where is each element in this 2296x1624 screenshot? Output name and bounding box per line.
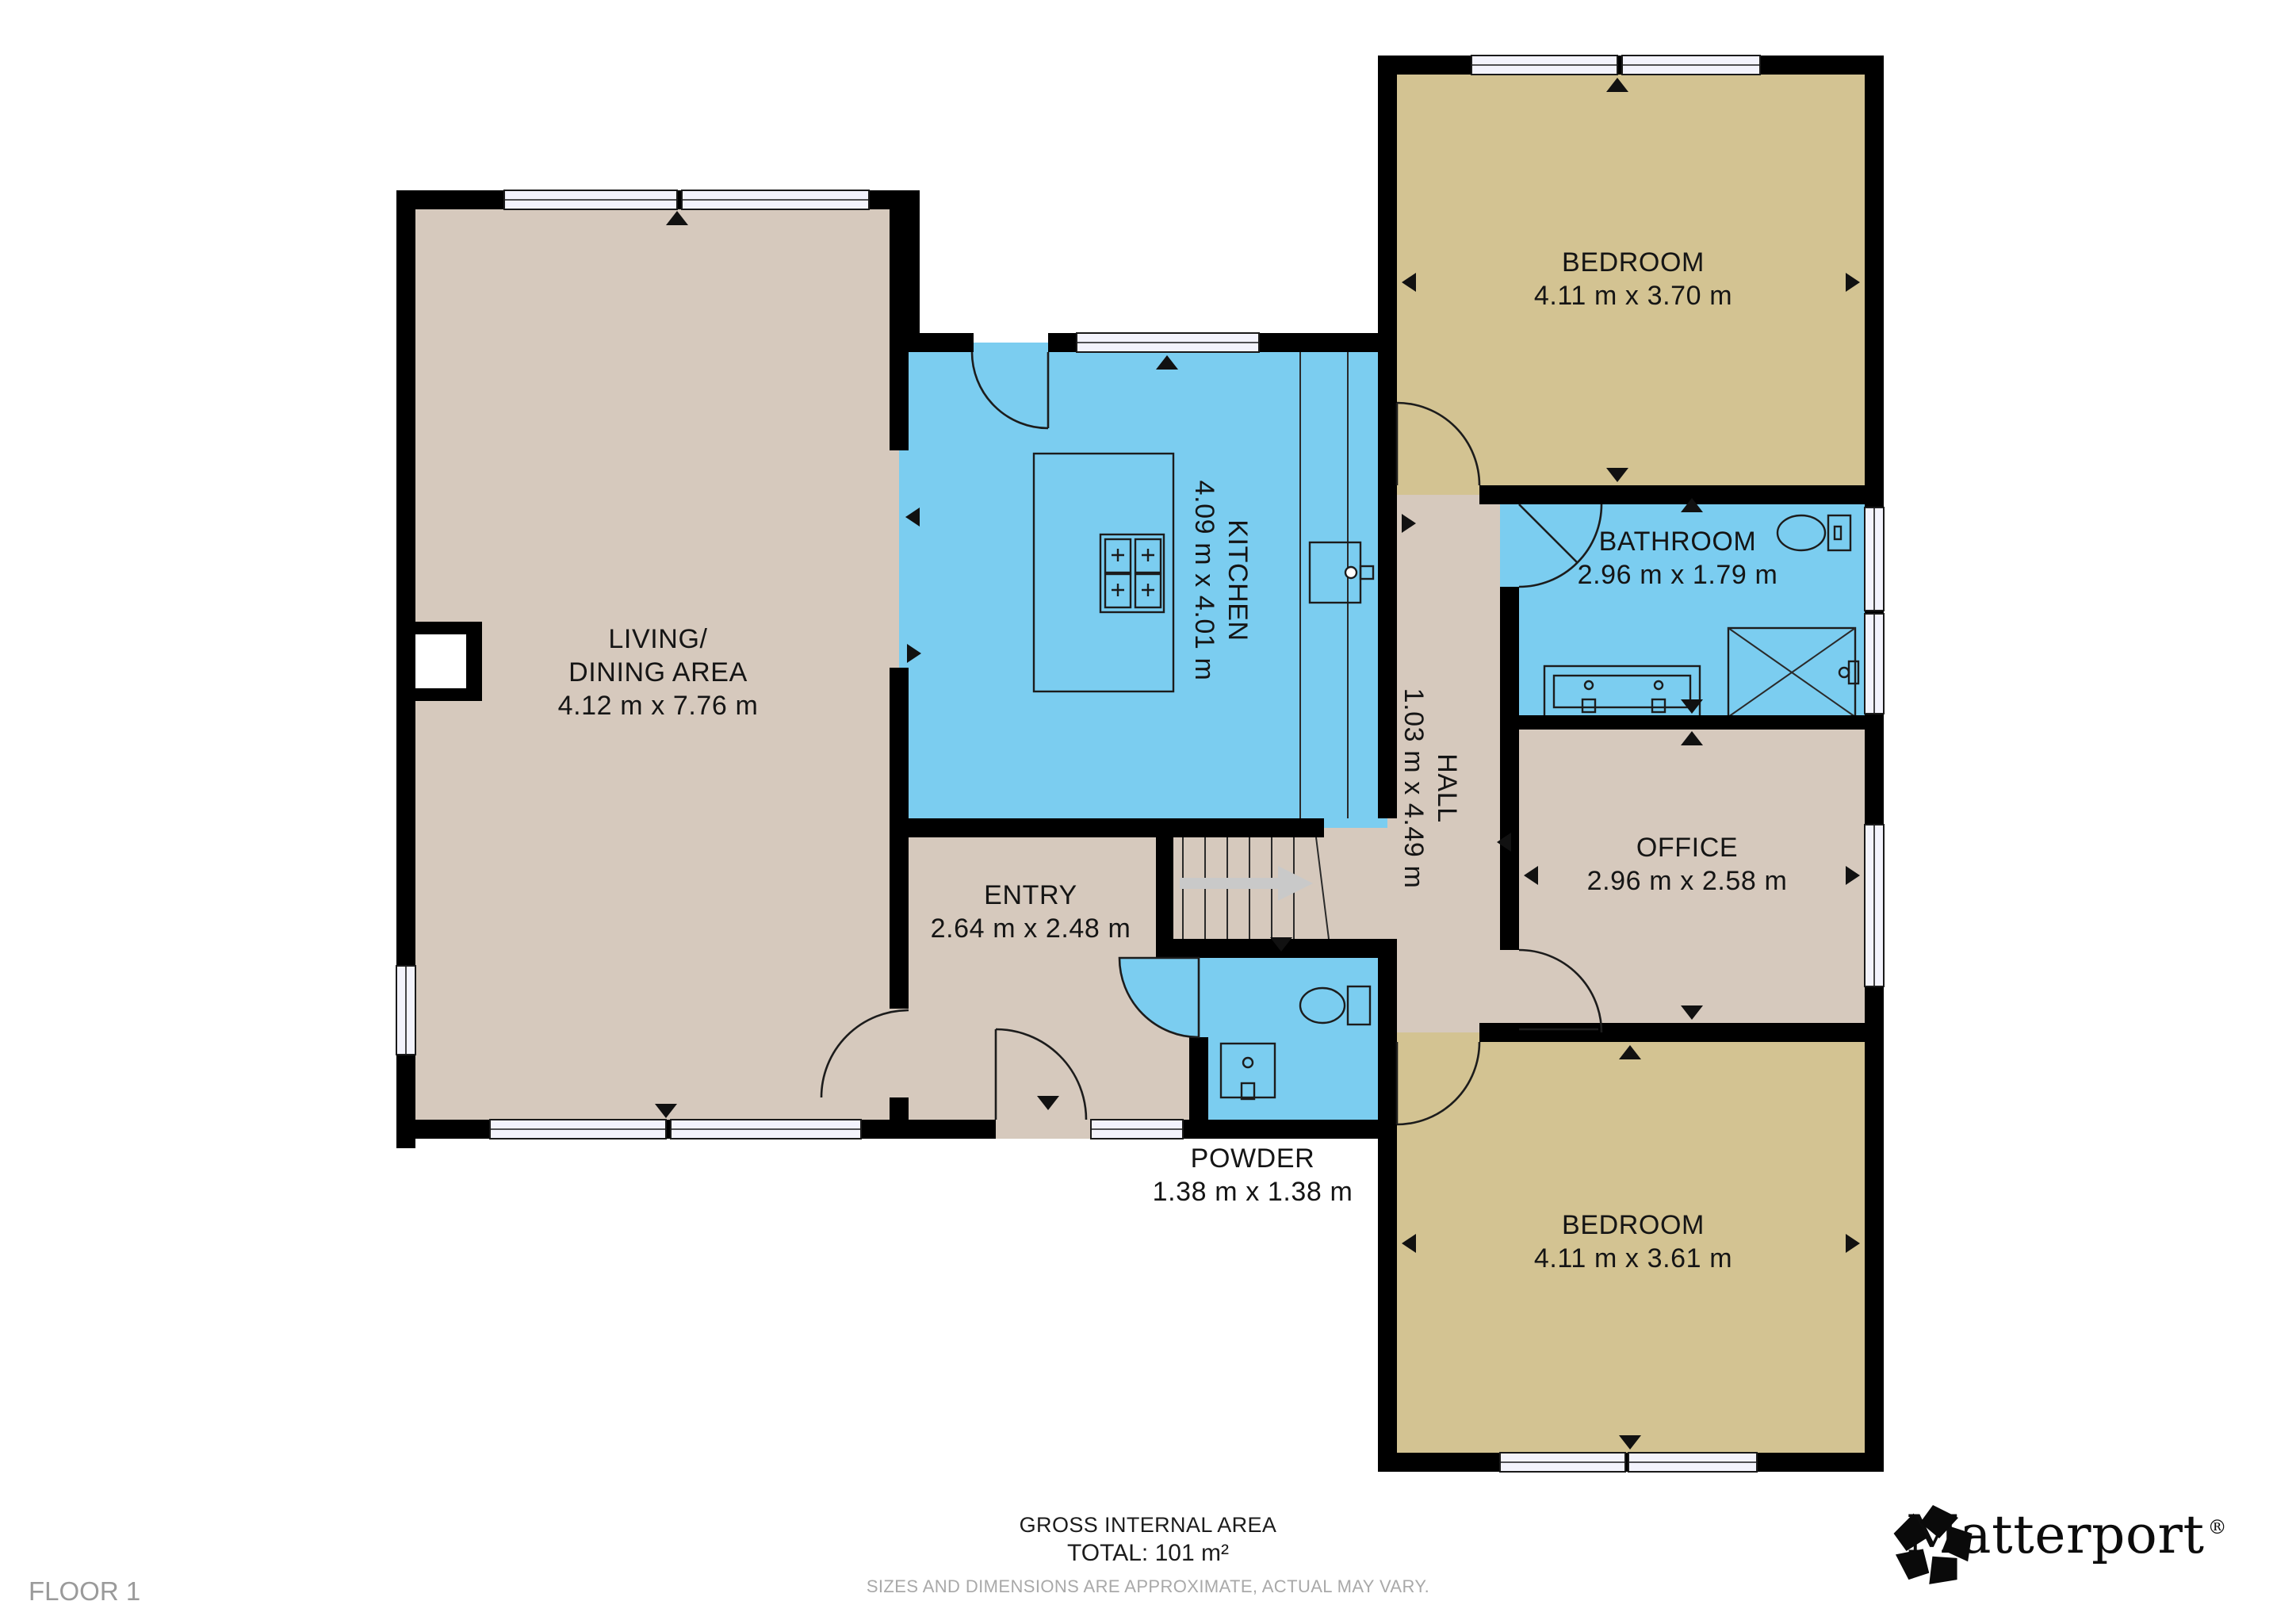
label-living-dining: LIVING/ DINING AREA 4.12 m x 7.76 m: [558, 622, 759, 722]
label-entry: ENTRY 2.64 m x 2.48 m: [931, 879, 1131, 945]
label-powder: POWDER 1.38 m x 1.38 m: [1153, 1142, 1353, 1208]
room-dims: 4.09 m x 4.01 m: [1188, 481, 1221, 681]
disclaimer-text: SIZES AND DIMENSIONS ARE APPROXIMATE, AC…: [867, 1578, 1429, 1597]
room-name: ENTRY: [931, 879, 1131, 912]
label-kitchen: KITCHEN 4.09 m x 4.01 m: [1188, 481, 1254, 681]
matterport-pinwheel-icon: [1890, 1503, 1976, 1589]
room-dims: 1.38 m x 1.38 m: [1153, 1175, 1353, 1208]
room-dims: 2.96 m x 1.79 m: [1578, 558, 1778, 592]
room-name: POWDER: [1153, 1142, 1353, 1175]
area-summary: GROSS INTERNAL AREA TOTAL: 101 m² SIZES …: [867, 1513, 1429, 1597]
room-dims: 2.96 m x 2.58 m: [1587, 864, 1788, 898]
room-kitchen-floor: [899, 343, 1387, 828]
room-dims: 4.11 m x 3.61 m: [1534, 1242, 1732, 1275]
total-area-value: TOTAL: 101 m²: [867, 1540, 1429, 1567]
matterport-logo: Matterport®: [1890, 1503, 2227, 1565]
label-hall: HALL 1.03 m x 4.49 m: [1397, 688, 1464, 889]
room-dims: 2.64 m x 2.48 m: [931, 912, 1131, 945]
room-dims: 4.11 m x 3.70 m: [1534, 279, 1732, 312]
label-bathroom: BATHROOM 2.96 m x 1.79 m: [1578, 525, 1778, 592]
room-name: DINING AREA: [558, 656, 759, 689]
room-name: BEDROOM: [1534, 1208, 1732, 1242]
label-office: OFFICE 2.96 m x 2.58 m: [1587, 831, 1788, 898]
floor-plan-drawing: [0, 0, 2296, 1624]
label-bedroom-top: BEDROOM 4.11 m x 3.70 m: [1534, 246, 1732, 312]
gross-area-title: GROSS INTERNAL AREA: [867, 1513, 1429, 1537]
room-name: BEDROOM: [1534, 246, 1732, 279]
room-name: LIVING/: [558, 622, 759, 656]
floor-indicator: FLOOR 1: [29, 1578, 140, 1608]
label-bedroom-bottom: BEDROOM 4.11 m x 3.61 m: [1534, 1208, 1732, 1275]
room-name: OFFICE: [1587, 831, 1788, 864]
room-dims: 4.12 m x 7.76 m: [558, 689, 759, 722]
room-name: KITCHEN: [1221, 481, 1254, 681]
room-name: BATHROOM: [1578, 525, 1778, 558]
room-dims: 1.03 m x 4.49 m: [1397, 688, 1430, 889]
registered-mark: ®: [2208, 1516, 2228, 1538]
room-name: HALL: [1430, 688, 1464, 889]
floor-plan-page: LIVING/ DINING AREA 4.12 m x 7.76 m KITC…: [0, 0, 2296, 1624]
